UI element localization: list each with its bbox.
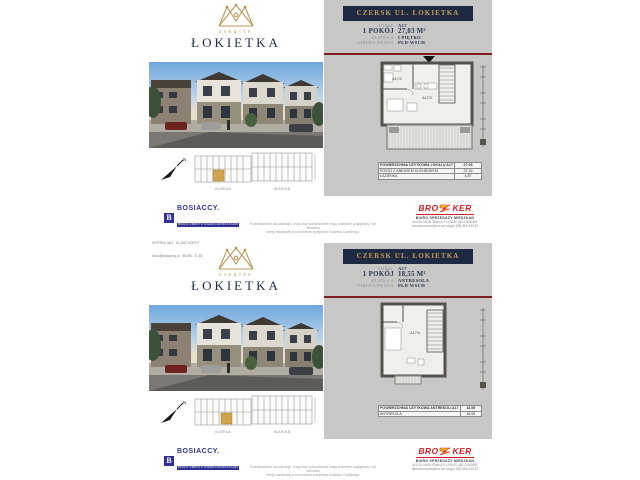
location-header: CZERSK UL. ŁOKIETKA (343, 249, 473, 264)
klatka-b-label: KLATKA B (274, 430, 291, 434)
location-header: CZERSK UL. ŁOKIETKA (343, 6, 473, 21)
broker-ker-text: KER (452, 204, 471, 213)
room-a-label: A17/4 (410, 331, 419, 335)
svg-text:N: N (183, 400, 186, 405)
bosiaccy-monogram-icon: B (164, 456, 174, 466)
broker-ker-text: KER (452, 447, 471, 456)
broker-underline (416, 457, 474, 458)
broker-logo-block: BRO KER BIURO SPRZEDAŻY MIESZKAŃ ALEJA J… (398, 447, 492, 471)
bosiaccy-tagline: BIURO OBROTU NIERUCHOMOŚCIAMI (177, 466, 239, 470)
area-value: 27,03 M² (398, 28, 488, 35)
unit-details: LOKAL A17 1 POKÓJ 18,55 M² KLATKA A ANTR… (324, 266, 492, 288)
area-table: POWIERZCHNIA UŻYTKOWA ANTRESOLI A1718,55… (378, 405, 482, 417)
north-arrow-icon: N (161, 400, 186, 423)
footer: B BOSIACCY. BIURO OBROTU NIERUCHOMOŚCIAM… (148, 447, 492, 480)
flyer-bottom: ZAKĄTEK ŁOKIETKA (148, 243, 492, 480)
unit-floor-plan: A17/4 (377, 298, 489, 402)
estate-logo: ZAKĄTEK ŁOKIETKA (148, 245, 324, 294)
flyer-page: ZAKĄTEK ŁOKIETKA (0, 0, 640, 480)
side-value: PŁD-WSCH (398, 40, 488, 45)
unit-info-panel: CZERSK UL. ŁOKIETKA LOKAL A17 1 POKÓJ 27… (324, 0, 492, 196)
legal-disclaimer: Przedstawione wizualizacje, rzuty oraz p… (248, 222, 378, 235)
unit-details: LOKAL A17 1 POKÓJ 27,03 M² KLATKA A I PI… (324, 23, 492, 45)
klatka-b-label: KLATKA B (274, 187, 291, 191)
klatka-a-label: KLATKA A (215, 187, 231, 191)
area-table: POWIERZCHNIA UŻYTKOWA LOKALU A1727,03 PO… (378, 162, 482, 180)
table-row: ŁAZIENKA4,87 (379, 174, 482, 180)
crown-icon (214, 2, 258, 28)
flyer-top: ZAKĄTEK ŁOKIETKA (148, 0, 492, 238)
bosiaccy-logo-block: B BOSIACCY. BIURO OBROTU NIERUCHOMOŚCIAM… (152, 448, 252, 480)
table-row: POKÓJ Z ANEKSEM KUCHENNYM22,16 (379, 168, 482, 174)
highlighted-unit (213, 170, 224, 181)
svg-text:N: N (183, 157, 186, 162)
north-arrow-icon: N (161, 157, 186, 180)
dimension-ruler (480, 308, 486, 390)
estate-subname: ZAKĄTEK (148, 29, 324, 34)
bosiaccy-name: BOSIACCY. (177, 205, 239, 212)
broker-zigzag-icon (439, 447, 451, 456)
bosiaccy-name: BOSIACCY. (177, 448, 239, 455)
area-value: 18,55 M² (398, 271, 488, 278)
side-label: STRONA ŚWIATA (324, 283, 394, 288)
rooms-label: 1 POKÓJ (324, 28, 394, 35)
broker-bro-text: BRO (418, 204, 438, 213)
building-site-plan: N KLATKA A KLATKA B (155, 393, 319, 439)
unit-floor-plan: A17/2 A17/3 (377, 55, 489, 159)
room-a-label: A17/2 (392, 77, 401, 81)
building-rendering-photo (149, 62, 323, 148)
estate-name: ŁOKIETKA (148, 35, 324, 51)
dimension-ruler (480, 65, 486, 147)
broker-contact: nieruchomosci@bro-ker.sbg.pl (58) 556 34… (398, 467, 492, 471)
table-row: ANTRESOLA18,55 (379, 411, 482, 417)
rooms-label: 1 POKÓJ (324, 271, 394, 278)
broker-logo-block: BRO KER BIURO SPRZEDAŻY MIESZKAŃ ALEJA J… (398, 204, 492, 228)
highlighted-unit (221, 413, 232, 424)
crown-icon (214, 245, 258, 271)
legal-disclaimer: Przedstawione wizualizacje, rzuty oraz p… (248, 465, 378, 478)
klatka-a-label: KLATKA A (215, 430, 231, 434)
broker-bro-text: BRO (418, 447, 438, 456)
broker-contact: nieruchomosci@bro-ker.sbg.pl (58) 556 34… (398, 224, 492, 228)
building-rendering-photo (149, 305, 323, 391)
broker-zigzag-icon (439, 204, 451, 213)
estate-subname: ZAKĄTEK (148, 272, 324, 277)
bosiaccy-monogram-icon: B (164, 213, 174, 223)
broker-underline (416, 214, 474, 215)
estate-name: ŁOKIETKA (148, 278, 324, 294)
room-b-label: A17/3 (422, 96, 431, 100)
table-row: POWIERZCHNIA UŻYTKOWA LOKALU A1727,03 (379, 163, 482, 169)
table-row: POWIERZCHNIA UŻYTKOWA ANTRESOLI A1718,55 (379, 406, 482, 412)
footer: B BOSIACCY. BIURO OBROTU NIERUCHOMOŚCIAM… (148, 204, 492, 238)
side-value: PŁD-WSCH (398, 283, 488, 288)
bosiaccy-tagline: BIURO OBROTU NIERUCHOMOŚCIAMI (177, 223, 239, 227)
building-site-plan: N KLATKA A KLATKA B (155, 150, 319, 196)
unit-info-panel: CZERSK UL. ŁOKIETKA LOKAL A17 1 POKÓJ 18… (324, 243, 492, 439)
side-label: STRONA ŚWIATA (324, 40, 394, 45)
estate-logo: ZAKĄTEK ŁOKIETKA (148, 2, 324, 51)
